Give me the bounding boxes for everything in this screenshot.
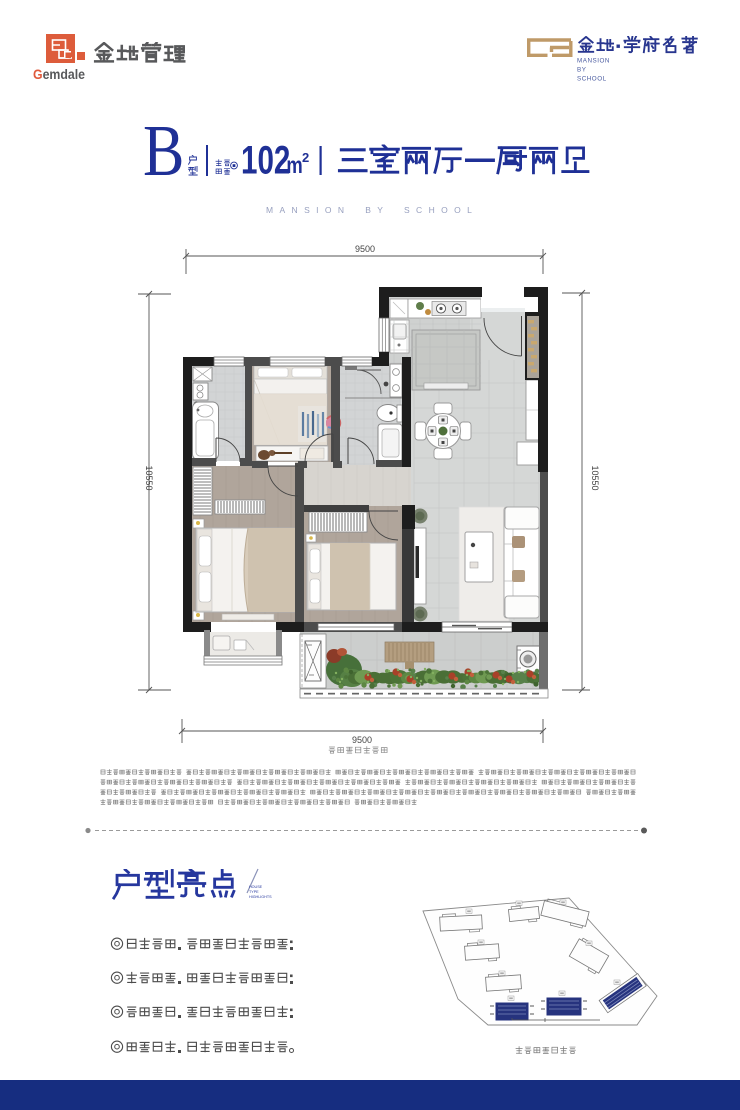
svg-text:MANSION BY SCHOOL: MANSION BY SCHOOL xyxy=(266,205,478,215)
svg-text:B: B xyxy=(143,110,184,191)
svg-text:102: 102 xyxy=(241,138,290,182)
svg-text:9500: 9500 xyxy=(352,735,372,745)
svg-text:10550: 10550 xyxy=(590,465,600,490)
svg-text:TYPE: TYPE xyxy=(249,890,259,894)
svg-text:HOUSE: HOUSE xyxy=(249,885,263,889)
svg-text:10550: 10550 xyxy=(144,465,154,490)
svg-text:MANSION: MANSION xyxy=(577,58,610,65)
svg-text:HIGHLIGHTS: HIGHLIGHTS xyxy=(249,895,272,899)
svg-text:BY: BY xyxy=(577,67,587,74)
svg-text:SCHOOL: SCHOOL xyxy=(577,76,607,83)
svg-text:m: m xyxy=(286,153,302,178)
svg-text:2: 2 xyxy=(302,150,309,165)
svg-text:9500: 9500 xyxy=(355,244,375,254)
svg-text:Gemdale: Gemdale xyxy=(33,66,85,82)
